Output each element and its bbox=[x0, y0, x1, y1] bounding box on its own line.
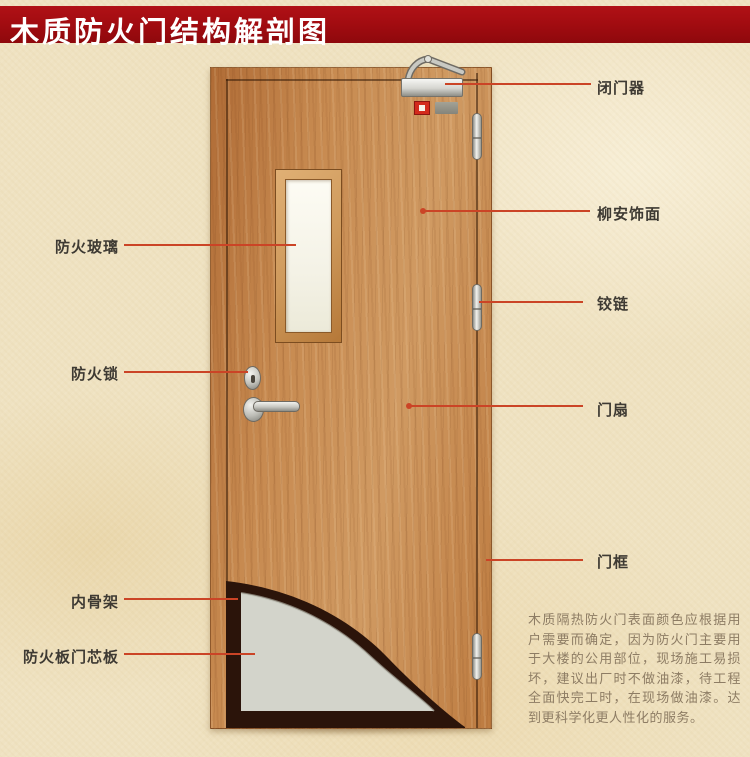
label-fire-lock: 防火锁 bbox=[0, 363, 119, 384]
leader-line-fire-glass bbox=[124, 244, 296, 246]
keyhole-icon bbox=[251, 375, 255, 383]
fire-lock-cylinder bbox=[244, 366, 261, 390]
leader-line-door-closer bbox=[445, 83, 591, 85]
fire-safety-sign-inner bbox=[419, 105, 425, 111]
hinge-middle bbox=[472, 284, 482, 331]
leader-line-lauan-veneer bbox=[424, 210, 590, 212]
hinge-bottom bbox=[472, 633, 482, 680]
leader-line-door-leaf bbox=[410, 405, 583, 407]
leader-line-door-frame bbox=[486, 559, 583, 561]
label-inner-skeleton: 内骨架 bbox=[0, 591, 119, 612]
door-handle-lever bbox=[253, 401, 300, 412]
door-closer-body bbox=[401, 78, 463, 97]
title-banner: 木质防火门结构解剖图 bbox=[0, 6, 750, 43]
leader-line-fire-lock bbox=[124, 371, 248, 373]
leader-line-hinge bbox=[479, 301, 583, 303]
label-door-closer: 闭门器 bbox=[597, 77, 645, 98]
name-plaque bbox=[435, 102, 458, 114]
label-hinge: 铰链 bbox=[597, 293, 629, 314]
fire-board-core-shape bbox=[241, 593, 434, 711]
label-fire-board-core: 防火板门芯板 bbox=[0, 646, 119, 667]
description-text: 木质隔热防火门表面颜色应根据用户需要而确定，因为防火门主要用于大楼的公用部位，现… bbox=[528, 610, 741, 727]
fire-glass-panel bbox=[285, 179, 332, 333]
label-door-leaf: 门扇 bbox=[597, 399, 629, 420]
label-lauan-veneer: 柳安饰面 bbox=[597, 203, 661, 224]
window-frame bbox=[275, 169, 342, 343]
door-gap-right bbox=[476, 73, 478, 728]
leader-line-inner-skeleton bbox=[124, 598, 238, 600]
page-title: 木质防火门结构解剖图 bbox=[10, 9, 330, 51]
fire-safety-sign bbox=[414, 101, 430, 115]
label-fire-glass: 防火玻璃 bbox=[0, 236, 119, 257]
leader-line-fire-board-core bbox=[124, 653, 255, 655]
label-door-frame: 门框 bbox=[597, 551, 629, 572]
cutaway-section bbox=[226, 579, 466, 729]
hinge-top bbox=[472, 113, 482, 160]
fire-door-illustration bbox=[210, 67, 492, 729]
infographic-root: 木质防火门结构解剖图 bbox=[0, 0, 750, 757]
